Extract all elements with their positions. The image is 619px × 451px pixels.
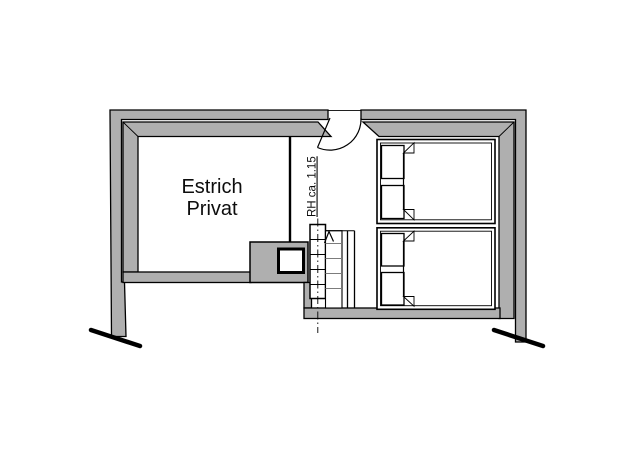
stair-height-annotation: RH ca. 1.15 <box>307 156 319 217</box>
pillow <box>382 186 405 219</box>
floor-plan-page: Estrich Privat RH ca. 1.15 <box>0 0 619 451</box>
chimney-flue <box>279 249 304 273</box>
room-label-line1: Estrich <box>181 176 242 198</box>
bed-bottom <box>377 228 495 309</box>
room-label-line2: Privat <box>186 198 238 220</box>
bed-top <box>377 140 495 224</box>
floor-plan-canvas: Estrich Privat RH ca. 1.15 <box>0 0 619 451</box>
pillow <box>382 234 405 267</box>
pillow <box>382 146 405 179</box>
stair-flight-right <box>326 231 343 308</box>
pillow <box>382 273 405 306</box>
bottom-wall-left-room <box>123 272 251 283</box>
